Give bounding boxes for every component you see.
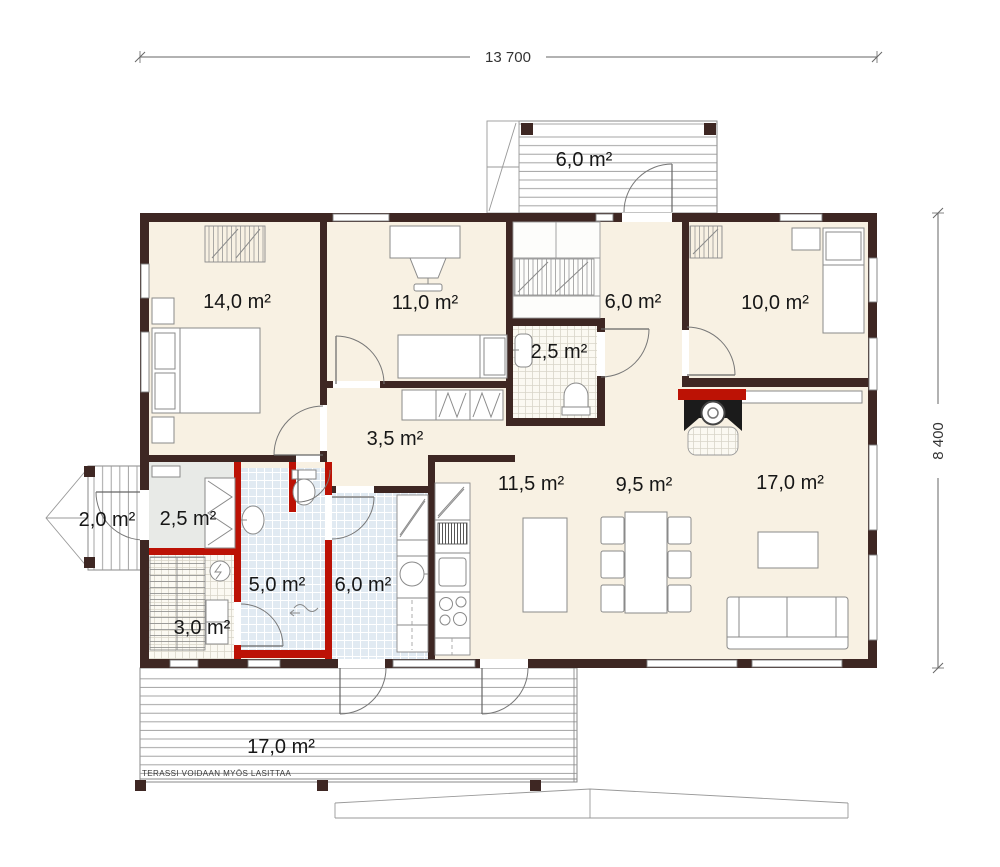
- room-label-utility: 2,5 m²: [160, 508, 217, 530]
- room-label-entrance-porch: 6,0 m²: [556, 149, 613, 171]
- wardrobe: [514, 259, 594, 295]
- dining-furniture: [601, 512, 691, 613]
- wardrobe: [690, 226, 722, 258]
- terrace-note: TERASSI VOIDAAN MYÖS LASITTAA: [142, 769, 292, 778]
- terrace: TERASSI VOIDAAN MYÖS LASITTAA: [135, 668, 848, 818]
- room-label-bedroom-master: 14,0 m²: [203, 291, 271, 313]
- room-label-living: 17,0 m²: [756, 472, 824, 494]
- single-bed: [398, 335, 507, 378]
- terrace-ramp: [335, 789, 848, 818]
- floor-plan-page: 13 700 8 400 TERASSI VOIDAAN: [0, 0, 1000, 867]
- desk: [390, 226, 460, 258]
- room-label-hallway: 3,5 m²: [367, 428, 424, 450]
- floor-plan-drawing: 13 700 8 400 TERASSI VOIDAAN: [0, 0, 1000, 867]
- hallway-wardrobes: [402, 390, 503, 420]
- chair: [601, 585, 624, 612]
- room-label-bedroom-right: 10,0 m²: [741, 292, 809, 314]
- room-label-sauna: 3,0 m²: [174, 617, 231, 639]
- dimension-right: 8 400: [929, 208, 947, 673]
- chair: [668, 585, 691, 612]
- porch-ramp: [487, 121, 519, 213]
- nightstand: [152, 298, 174, 324]
- closet-column: [513, 222, 600, 318]
- nightstand: [152, 417, 174, 443]
- sofa: [727, 597, 848, 649]
- room-label-terrace: 17,0 m²: [247, 736, 315, 758]
- terrace-post: [317, 780, 328, 791]
- double-bed: [152, 328, 260, 413]
- terrace-post: [135, 780, 146, 791]
- toilet: [292, 470, 316, 505]
- room-label-dining: 9,5 m²: [616, 474, 673, 496]
- single-bed: [823, 228, 864, 333]
- terrace-post: [530, 780, 541, 791]
- chair: [601, 551, 624, 578]
- nightstand: [792, 228, 820, 250]
- room-label-washroom: 5,0 m²: [249, 574, 306, 596]
- utility-room-counter: [397, 495, 428, 652]
- coffee-table: [758, 532, 818, 568]
- chair: [668, 551, 691, 578]
- dishwasher: [439, 558, 466, 586]
- porch-post: [84, 466, 95, 477]
- sauna-heater: [210, 561, 230, 581]
- toilet: [562, 383, 590, 415]
- dining-table: [625, 512, 667, 613]
- porch-post: [84, 557, 95, 568]
- wardrobe: [205, 226, 265, 262]
- chair: [601, 517, 624, 544]
- dimension-height-label: 8 400: [930, 422, 947, 460]
- dimension-top: 13 700: [135, 48, 882, 66]
- building: [140, 213, 877, 668]
- shelf: [152, 466, 180, 477]
- chair: [668, 517, 691, 544]
- room-label-side-porch: 2,0 m²: [79, 509, 136, 531]
- room-label-bedroom-office: 11,0 m²: [392, 292, 459, 314]
- room-label-entry-hall: 6,0 m²: [605, 291, 662, 313]
- fireplace: [678, 389, 746, 455]
- oven: [438, 523, 467, 544]
- room-label-utility-room: 6,0 m²: [335, 574, 392, 596]
- fireplace-masonry: [678, 389, 746, 400]
- room-label-kitchen: 11,5 m²: [498, 473, 565, 495]
- porch-post: [521, 123, 533, 135]
- chair: [414, 284, 442, 291]
- dimension-width-label: 13 700: [485, 49, 531, 66]
- kitchen-island: [523, 518, 567, 612]
- room-label-wc: 2,5 m²: [531, 341, 588, 363]
- porch-post: [704, 123, 716, 135]
